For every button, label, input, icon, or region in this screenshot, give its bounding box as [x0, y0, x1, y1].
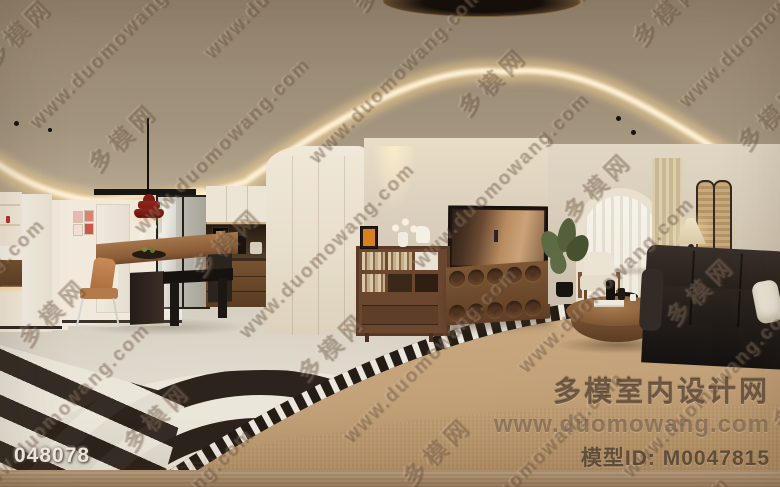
upper-cabinets	[206, 186, 268, 222]
cushion-seam	[691, 251, 695, 289]
bedroom-shelf	[0, 224, 20, 226]
wall-art-frame	[73, 224, 83, 236]
artwork-figure	[494, 230, 498, 242]
skirting-board	[0, 326, 62, 329]
white-storage-box	[415, 252, 438, 270]
books	[388, 252, 411, 270]
red-bottle-decor	[6, 216, 10, 223]
bookshelf-leg	[365, 333, 369, 342]
cushion-seam	[737, 291, 741, 329]
under-cabinet-light	[0, 287, 22, 290]
shelf-decor	[388, 274, 411, 292]
white-vase	[398, 232, 408, 247]
carved-circle	[506, 266, 522, 283]
books	[362, 274, 385, 292]
carved-circle	[468, 303, 484, 320]
cream-wardrobe	[266, 146, 366, 334]
chrome-chair-frame	[76, 298, 84, 326]
cushion-seam	[739, 253, 743, 291]
table-lamp-screen	[363, 229, 375, 246]
wardrobe-seam	[292, 156, 293, 335]
tv-console-circle-pattern	[446, 260, 550, 325]
panorama-360-interior: 多模网www.duomowang.com多模网www.duomowang.com…	[0, 0, 780, 487]
carved-circle	[449, 304, 465, 321]
carved-circle	[525, 299, 541, 316]
wall-art-frame	[73, 211, 83, 223]
console-circles	[449, 265, 547, 322]
tan-leather-chair	[74, 258, 122, 328]
cabinet-seam	[247, 186, 248, 222]
black-leather-sofa	[641, 244, 780, 373]
chrome-chair-frame	[112, 298, 119, 326]
cabinet-seam	[226, 186, 227, 222]
model-id-text: 模型ID: M0047815	[494, 447, 770, 471]
nadir-floor-blur-strip	[0, 470, 780, 487]
carved-circle	[506, 300, 522, 317]
wardrobe-seam	[318, 156, 319, 335]
white-wall-column	[22, 194, 52, 332]
bookshelf-row	[362, 252, 438, 270]
wall-art-frame	[84, 223, 94, 235]
artwork-image	[452, 210, 545, 267]
fruit-bowl	[132, 250, 166, 259]
table-lamp	[360, 226, 378, 249]
stacked-books	[594, 300, 624, 305]
bench-leg	[170, 282, 179, 326]
bookshelf-row	[362, 274, 438, 292]
cushion-seam	[689, 289, 693, 327]
carved-circle	[468, 269, 484, 286]
pendant-tier	[143, 194, 155, 201]
wall-art-frame	[84, 210, 94, 222]
black-vase	[606, 280, 615, 300]
red-pendant-lamp	[134, 194, 164, 221]
white-kettle	[416, 226, 430, 243]
bedroom-counter	[0, 246, 22, 260]
site-watermark-block: 多模室内设计网 www.duomowang.com 模型ID: M0047815	[494, 376, 770, 471]
panorama-id-text: 048078	[14, 444, 90, 468]
wardrobe-seam	[344, 156, 345, 335]
dark-compartment	[415, 274, 438, 292]
bedroom-shelf	[0, 204, 20, 206]
table-centerpiece	[130, 222, 170, 260]
sofa-front-panel	[641, 322, 780, 369]
sofa-armrest	[639, 268, 664, 331]
green-fruit	[142, 247, 147, 252]
black-vase-small	[618, 288, 625, 300]
chrome-chair-skid	[76, 325, 119, 327]
white-flower-sprigs	[134, 222, 166, 246]
niche-led-strip	[206, 222, 268, 224]
carved-circle	[487, 302, 503, 319]
pendant-tier	[134, 209, 164, 218]
bench-leg	[218, 278, 227, 318]
carved-circle	[525, 265, 541, 282]
carved-circle	[487, 268, 503, 285]
dining-table-leg	[130, 271, 164, 325]
site-name-text: 多模室内设计网	[494, 376, 770, 408]
books	[362, 252, 385, 270]
site-url-text: www.duomowang.com	[494, 411, 770, 439]
bookshelf-leg	[429, 333, 433, 342]
pendant-tier	[138, 201, 160, 209]
bedroom-walnut-drawers	[0, 260, 22, 287]
white-cup	[630, 294, 636, 301]
bookshelf-drawers	[362, 305, 438, 325]
pendant-rod	[147, 118, 149, 196]
cups-stack	[250, 242, 262, 254]
carved-circle	[449, 270, 465, 287]
plant-pot	[556, 282, 573, 297]
wall-wash-light	[372, 146, 416, 212]
walnut-bookshelf	[356, 246, 450, 336]
